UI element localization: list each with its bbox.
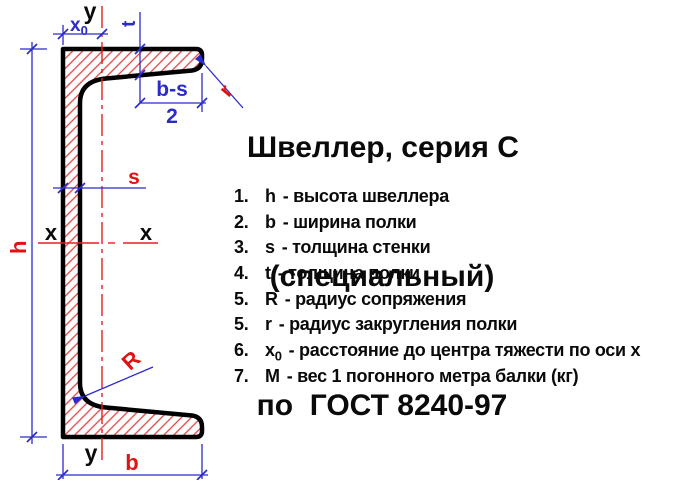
b-s-numerator-label: b-s	[156, 78, 188, 101]
R-label: R	[117, 346, 146, 375]
legend-item-b: 2.b- ширина полки	[234, 212, 640, 238]
legend-item-M: 7.M- вес 1 погонного метра балки (кг)	[234, 366, 640, 392]
b-label: b	[125, 450, 138, 475]
title-line-1: Швеллер, серия С	[247, 126, 517, 169]
legend-item-R: 5.R- радиус сопряжения	[234, 289, 640, 315]
x0-dimension: x0	[53, 15, 108, 45]
half-flange-dimension: b-s 2	[135, 73, 207, 128]
r-leader: r	[206, 66, 243, 108]
legend-item-r: 5.r- радиус закругления полки	[234, 314, 640, 340]
b-dimension: b	[56, 444, 208, 480]
x-axis-label-right: x	[140, 220, 153, 245]
legend-item-s: 3.s- толщина стенки	[234, 237, 640, 263]
legend-item-x0: 6.x0- расстояние до центра тяжести по ос…	[234, 340, 640, 366]
s-label: s	[128, 166, 140, 189]
r-label: r	[215, 80, 238, 101]
b-s-denominator-label: 2	[166, 105, 178, 128]
h-label: h	[6, 241, 31, 254]
legend-item-t: 4.t- толщина полки	[234, 263, 640, 289]
x-axis-label-left: x	[45, 220, 58, 245]
legend-item-h: 1.h- высота швеллера	[234, 186, 640, 212]
y-axis-label-bottom: y	[85, 440, 98, 466]
parameter-legend: 1.h- высота швеллера 2.b- ширина полки 3…	[234, 186, 640, 392]
t-label: t	[119, 20, 140, 27]
y-axis-label-top: y	[84, 0, 97, 24]
R-leader: R	[85, 346, 153, 396]
page: h x0 t b-s 2 r	[0, 0, 675, 480]
